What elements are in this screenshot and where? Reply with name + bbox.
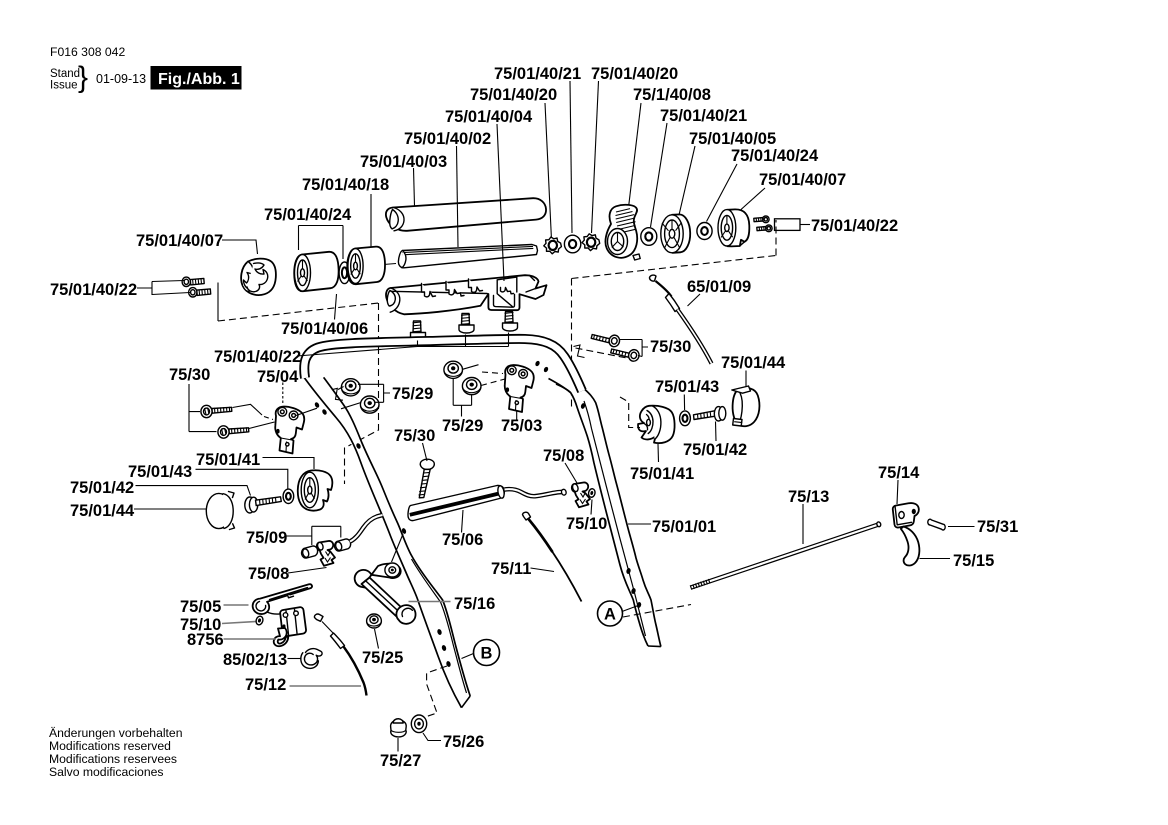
svg-text:75/30: 75/30 — [394, 427, 435, 445]
svg-text:65/01/09: 65/01/09 — [687, 278, 751, 296]
svg-text:75/01/40/03: 75/01/40/03 — [360, 153, 447, 171]
svg-text:75/08: 75/08 — [248, 565, 289, 583]
svg-text:75/06: 75/06 — [442, 531, 483, 549]
svg-text:A: A — [604, 606, 616, 624]
svg-text:75/01/40/05: 75/01/40/05 — [689, 130, 776, 148]
svg-text:75/01/40/06: 75/01/40/06 — [281, 320, 368, 338]
svg-text:Änderungen vorbehalten: Änderungen vorbehalten — [49, 726, 183, 740]
svg-text:75/11: 75/11 — [491, 560, 531, 578]
svg-text:75/01/41: 75/01/41 — [196, 451, 260, 469]
svg-text:75/01/40/21: 75/01/40/21 — [660, 107, 747, 125]
svg-text:75/1/40/08: 75/1/40/08 — [633, 86, 711, 104]
svg-text:75/13: 75/13 — [788, 488, 829, 506]
svg-text:75/01/40/24: 75/01/40/24 — [731, 147, 819, 165]
svg-text:75/03: 75/03 — [501, 417, 542, 435]
svg-text:75/10: 75/10 — [566, 515, 607, 533]
svg-text:Fig./Abb. 1: Fig./Abb. 1 — [158, 71, 240, 88]
svg-text:75/01/40/02: 75/01/40/02 — [404, 130, 491, 148]
svg-text:Modifications reservees: Modifications reservees — [49, 752, 177, 766]
svg-text:75/01/40/24: 75/01/40/24 — [264, 206, 352, 224]
svg-text:75/01/40/22: 75/01/40/22 — [50, 281, 137, 299]
svg-text:75/26: 75/26 — [443, 733, 484, 751]
svg-text:75/01/40/04: 75/01/40/04 — [445, 108, 533, 126]
svg-text:75/01/01: 75/01/01 — [652, 518, 716, 536]
svg-text:Issue: Issue — [50, 80, 78, 92]
svg-text:75/25: 75/25 — [362, 649, 403, 667]
svg-text:75/08: 75/08 — [543, 447, 584, 465]
svg-text:75/01/43: 75/01/43 — [655, 378, 719, 396]
svg-text:75/15: 75/15 — [953, 552, 994, 570]
svg-text:Salvo modificaciones: Salvo modificaciones — [49, 765, 163, 779]
svg-text:75/01/40/22: 75/01/40/22 — [214, 348, 301, 366]
svg-text:75/01/44: 75/01/44 — [721, 354, 786, 372]
svg-text:75/01/42: 75/01/42 — [70, 479, 134, 497]
svg-text:8756: 8756 — [187, 631, 224, 649]
svg-text:75/30: 75/30 — [169, 366, 210, 384]
svg-text:75/01/43: 75/01/43 — [128, 463, 192, 481]
svg-text:F016 308 042: F016 308 042 — [50, 45, 125, 59]
svg-text:75/01/40/20: 75/01/40/20 — [591, 65, 678, 83]
svg-text:75/29: 75/29 — [442, 417, 483, 435]
svg-text:75/04: 75/04 — [257, 368, 299, 386]
svg-text:75/01/44: 75/01/44 — [70, 502, 135, 520]
svg-text:75/27: 75/27 — [380, 752, 421, 770]
svg-text:Modifications reserved: Modifications reserved — [49, 739, 171, 753]
svg-text:75/01/41: 75/01/41 — [630, 465, 694, 483]
svg-text:75/29: 75/29 — [392, 385, 433, 403]
svg-text:85/02/13: 85/02/13 — [223, 651, 287, 669]
svg-text:75/14: 75/14 — [878, 464, 920, 482]
svg-text:75/30: 75/30 — [650, 338, 691, 356]
svg-text:75/01/40/07: 75/01/40/07 — [136, 232, 223, 250]
svg-text:75/01/40/20: 75/01/40/20 — [470, 86, 557, 104]
svg-text:75/31: 75/31 — [977, 518, 1018, 536]
svg-text:75/09: 75/09 — [246, 529, 287, 547]
svg-text:75/05: 75/05 — [180, 598, 221, 616]
svg-text:75/12: 75/12 — [245, 676, 286, 694]
svg-text:75/01/40/07: 75/01/40/07 — [759, 171, 846, 189]
svg-text:75/16: 75/16 — [454, 595, 495, 613]
svg-text:75/01/40/22: 75/01/40/22 — [811, 217, 898, 235]
svg-text:B: B — [481, 645, 493, 663]
svg-text:75/01/40/21: 75/01/40/21 — [494, 65, 581, 83]
svg-text:Stand: Stand — [50, 68, 80, 80]
svg-text:75/01/40/18: 75/01/40/18 — [302, 176, 389, 194]
svg-text:75/01/42: 75/01/42 — [683, 441, 747, 459]
svg-text:01-09-13: 01-09-13 — [96, 72, 146, 86]
svg-text:}: } — [78, 61, 88, 94]
